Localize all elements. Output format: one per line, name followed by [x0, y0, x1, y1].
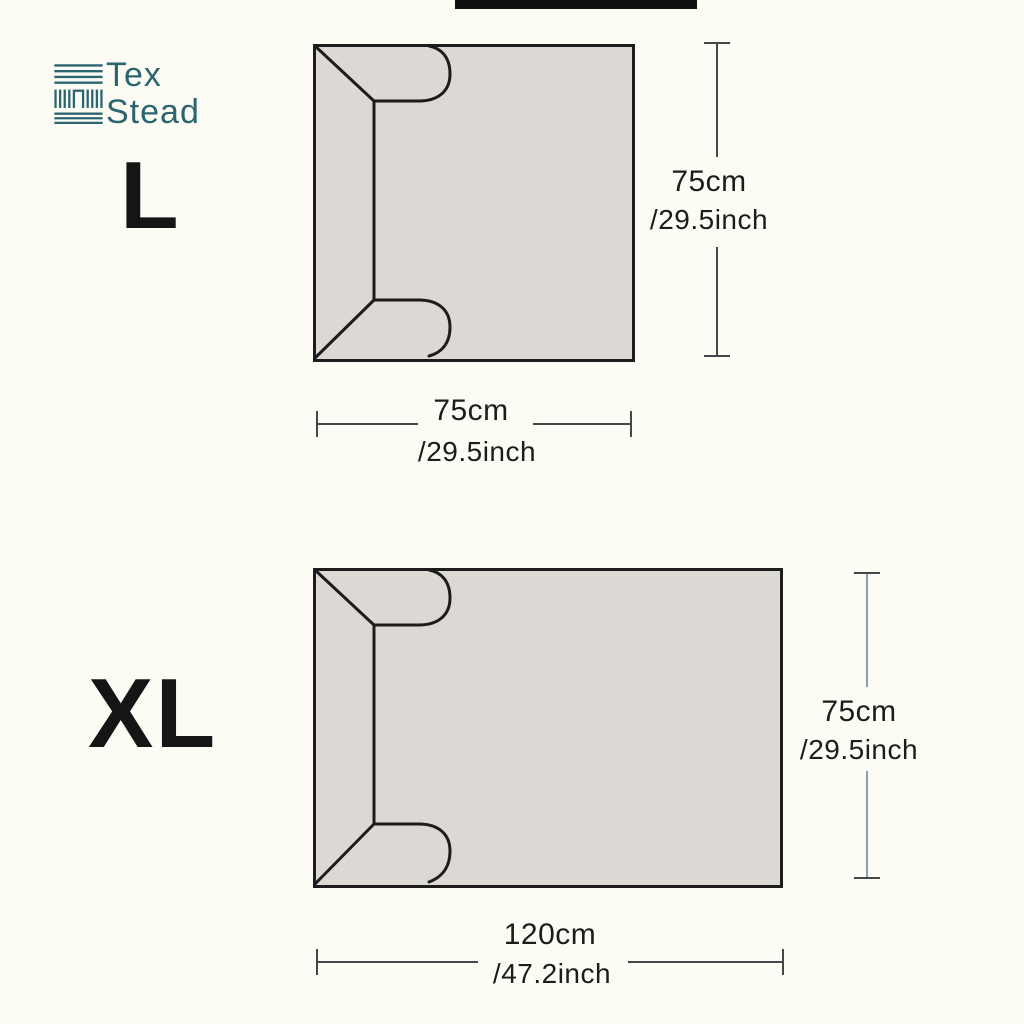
height-dimension-l: 75cm /29.5inch — [655, 42, 779, 360]
dimension-line — [866, 771, 868, 877]
dimension-cap — [630, 411, 632, 437]
dimension-line — [318, 423, 418, 425]
dimension-line — [533, 423, 630, 425]
height-dimension-xl: 75cm /29.5inch — [805, 572, 929, 882]
woven-fabric-icon — [52, 62, 105, 124]
width-dimension-l: 75cm /29.5inch — [316, 394, 632, 468]
dimension-line — [628, 961, 782, 963]
dimension-value-cm: 75cm — [411, 394, 531, 428]
width-dimension-xl: 120cm /47.2inch — [316, 918, 784, 992]
top-bar-fragment — [455, 0, 697, 9]
product-diagram-l — [313, 44, 635, 362]
dimension-value-inch: /29.5inch — [797, 734, 921, 766]
dimension-value-inch: /29.5inch — [417, 436, 537, 468]
brand-name-line2: Stead — [106, 94, 200, 131]
size-label-xl: XL — [88, 664, 217, 762]
dimension-line — [716, 247, 718, 355]
product-diagram-xl — [313, 568, 783, 888]
dimension-cap — [704, 355, 730, 357]
brand-name: Tex Stead — [106, 57, 200, 131]
dimension-value-inch: /47.2inch — [492, 958, 612, 990]
dimension-value-inch: /29.5inch — [647, 204, 771, 236]
dimension-value-cm: 75cm — [647, 165, 771, 199]
brand-name-line1: Tex — [106, 57, 200, 94]
dimension-line — [866, 574, 868, 687]
dimension-value-cm: 75cm — [797, 695, 921, 729]
size-label-l: L — [120, 148, 181, 244]
dimension-value-cm: 120cm — [490, 918, 610, 952]
dimension-cap — [782, 949, 784, 975]
dimension-line — [716, 44, 718, 157]
dimension-line — [318, 961, 478, 963]
dimension-cap — [854, 877, 880, 879]
